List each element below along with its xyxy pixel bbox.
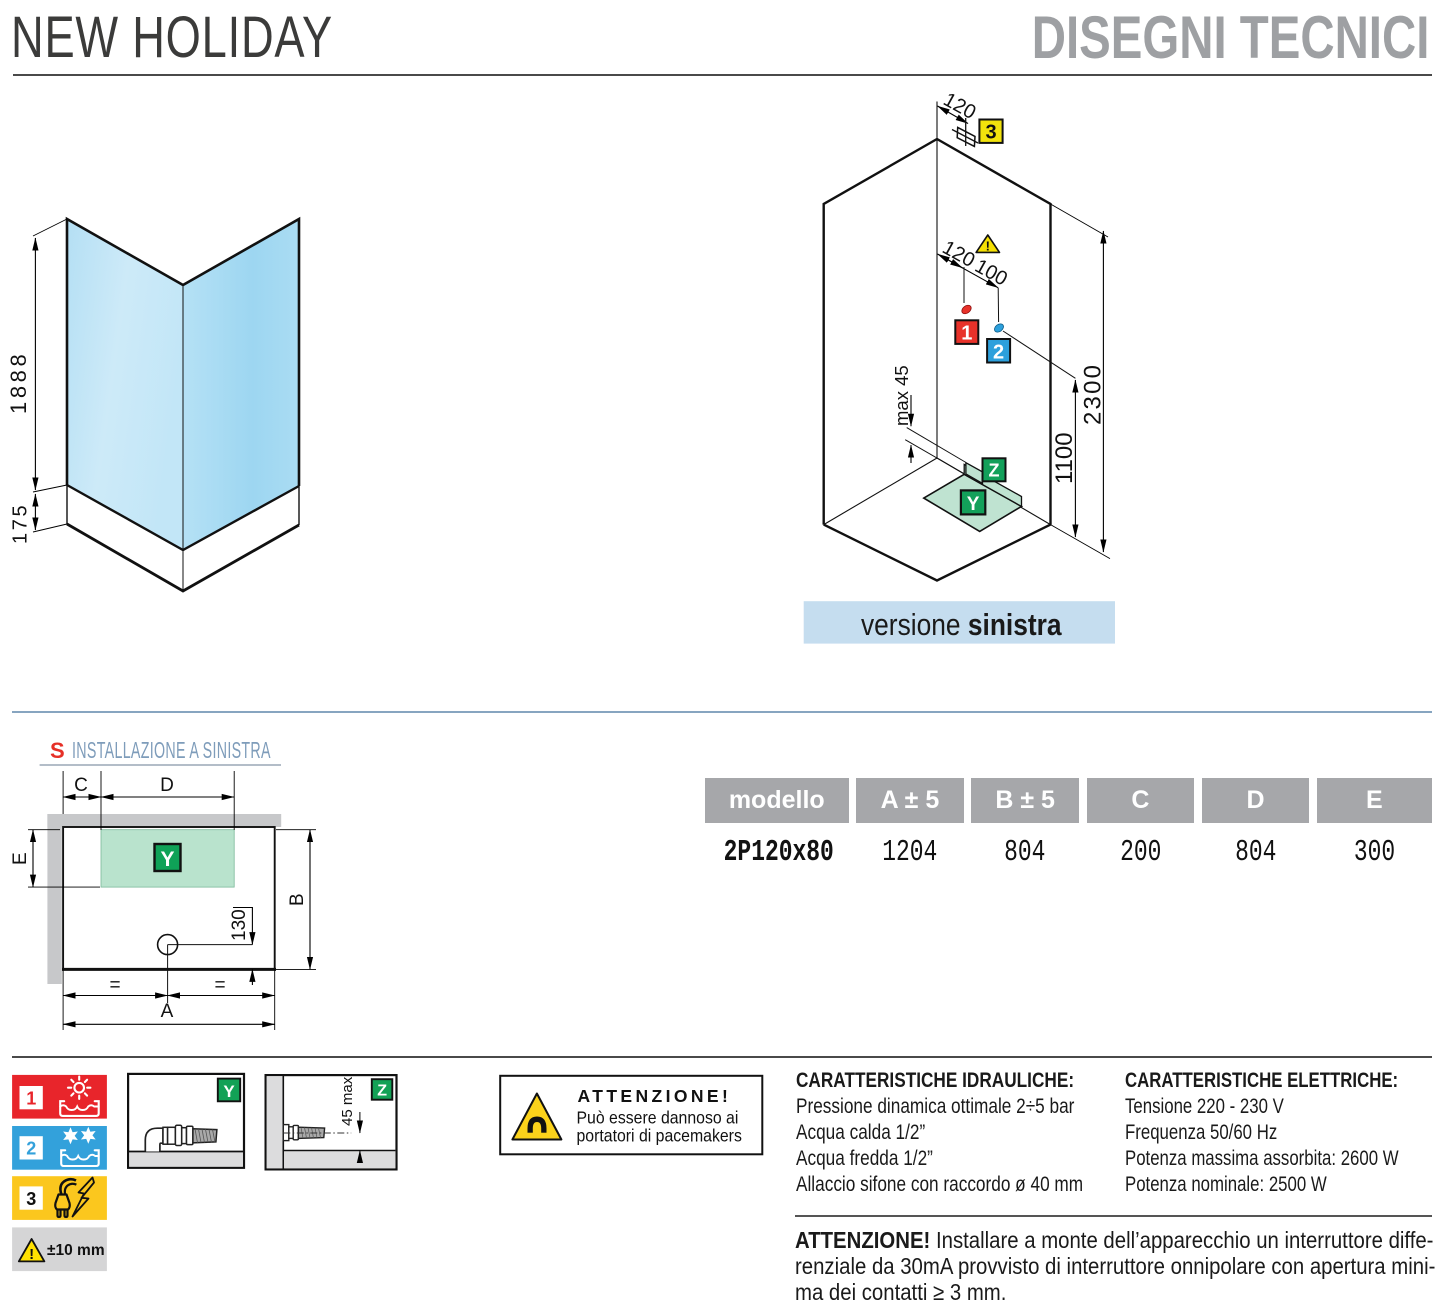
svg-text:1: 1 [961,323,972,345]
svg-text:!: ! [986,239,990,254]
svg-text:2: 2 [26,1139,36,1159]
svg-text:130: 130 [229,909,250,941]
svg-text:Y: Y [223,1082,235,1101]
svg-text:max 45: max 45 [891,365,912,426]
svg-text:1: 1 [26,1089,36,1109]
svg-text:175: 175 [10,503,32,544]
svg-text:2: 2 [993,341,1004,363]
svg-text:±10 mm: ±10 mm [47,1242,105,1259]
svg-text:120: 120 [939,237,979,272]
svg-text:E: E [10,852,31,865]
svg-text:Y: Y [967,494,980,515]
svg-text:=: = [109,975,120,996]
svg-text:3: 3 [26,1189,36,1209]
svg-text:portatori di pacemakers: portatori di pacemakers [577,1126,742,1146]
svg-text:1100: 1100 [1051,432,1078,484]
svg-text:3: 3 [985,122,996,144]
svg-text:!: ! [29,1246,34,1263]
svg-text:Y: Y [160,848,174,871]
svg-text:45 max: 45 max [339,1076,356,1126]
svg-text:C: C [74,775,88,796]
svg-text:=: = [214,975,225,996]
svg-text:INSTALLAZIONE A SINISTRA: INSTALLAZIONE A SINISTRA [72,739,271,764]
svg-text:Z: Z [989,461,1000,481]
svg-text:B: B [287,893,308,906]
svg-text:A: A [161,1001,174,1022]
svg-text:S: S [50,738,65,763]
svg-text:Z: Z [377,1083,387,1100]
svg-text:120: 120 [940,89,980,124]
svg-text:100: 100 [971,255,1011,290]
svg-text:1888: 1888 [6,351,31,414]
svg-text:versione sinistra: versione sinistra [861,608,1062,642]
svg-text:ATTENZIONE!: ATTENZIONE! [578,1086,732,1106]
svg-text:D: D [160,775,174,796]
svg-text:2300: 2300 [1080,363,1107,425]
